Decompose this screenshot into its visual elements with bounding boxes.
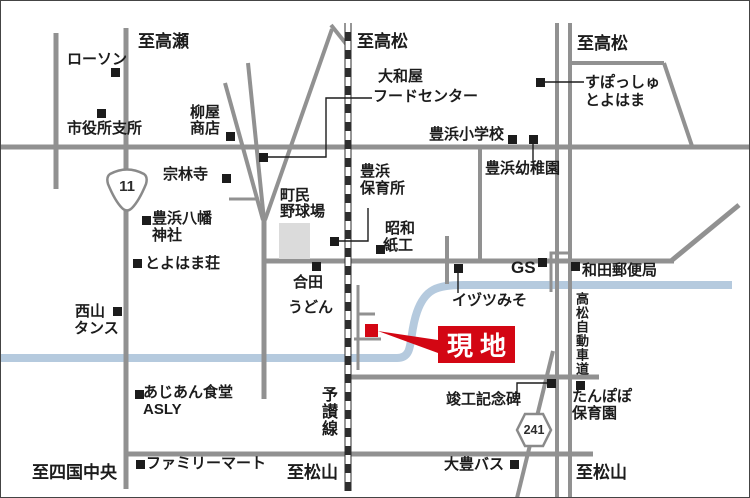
marker-toyohamaso [133, 259, 142, 268]
marker-gs [538, 258, 547, 267]
route-11-number: 11 [107, 178, 147, 195]
label-elementary: 豊浜小学校 [429, 127, 504, 143]
label-to-matsuyama-right: 至松山 [576, 465, 627, 481]
marker-yanagiya [226, 132, 235, 141]
label-yanagiya-1: 柳屋 [190, 105, 220, 121]
marker-kindergarten [529, 135, 538, 144]
label-sposh-2: とよはま [585, 93, 645, 109]
marker-city-branch [97, 109, 106, 118]
label-city-branch: 市役所支所 [67, 121, 142, 137]
label-asian-2: ASLY [143, 402, 182, 418]
label-toyohamaso: とよはま荘 [145, 256, 220, 272]
label-yanagiya-2: 商店 [190, 121, 220, 137]
marker-monument [547, 379, 556, 388]
label-to-takamatsu-right: 至高松 [577, 36, 628, 52]
road-trapezoid-diagonal [664, 63, 692, 146]
label-familymart: ファミリーマート [146, 456, 266, 472]
marker-lawson [111, 68, 120, 77]
label-kindergarten: 豊浜幼稚園 [485, 161, 560, 177]
label-yamatoya-1: 大和屋 [378, 69, 423, 85]
marker-daitoyo-bus [510, 460, 519, 469]
label-monument: 竣工記念碑 [446, 392, 521, 408]
toyohama-area-map: 至高瀬 至高松 至高松 至四国中央 至松山 至松山 ローソン 市役所支所 柳屋 … [0, 0, 750, 498]
marker-elementary [508, 135, 517, 144]
label-sorinji: 宗林寺 [163, 167, 208, 183]
ballpark-field [279, 223, 310, 259]
label-yamatoya-2: フードセンター [373, 89, 478, 105]
label-to-matsuyama-center: 至松山 [287, 465, 338, 481]
site-marker [365, 324, 378, 337]
label-ballpark-1: 町民 [280, 188, 310, 204]
marker-hachiman [142, 216, 151, 225]
label-gs: GS [511, 260, 536, 276]
marker-izutsu [454, 264, 463, 273]
label-goda-2: うどん [288, 300, 333, 316]
road-northeast-diagonal [671, 205, 739, 261]
label-nishiyama-2: タンス [74, 321, 119, 337]
route-241-number: 241 [514, 423, 554, 437]
label-tanpopo-1: たんぽぽ [572, 389, 632, 405]
marker-familymart [136, 460, 145, 469]
label-asian-1: あじあん食堂 [143, 385, 233, 401]
leader-nursery [338, 208, 368, 241]
label-showa-2: 紙工 [383, 238, 413, 254]
label-expressway: 高松自動車道 [573, 292, 589, 376]
label-tanpopo-2: 保育園 [572, 406, 617, 422]
label-hachiman-2: 神社 [152, 228, 182, 244]
label-lawson: ローソン [67, 52, 127, 68]
site-callout: 現地 [438, 326, 515, 363]
label-nishiyama-1: 西山 [75, 304, 105, 320]
label-nursery-2: 保育所 [360, 181, 405, 197]
label-goda-1: 合田 [293, 275, 323, 291]
label-to-takase: 至高瀬 [138, 34, 189, 50]
label-ballpark-2: 野球場 [280, 204, 325, 220]
marker-wada-post-office [571, 262, 580, 271]
marker-yamatoya [259, 153, 268, 162]
label-to-takamatsu-center: 至高松 [357, 34, 408, 50]
label-yosan-line: 予讃線 [319, 386, 335, 437]
marker-nursery [330, 237, 339, 246]
label-nursery-1: 豊浜 [360, 164, 390, 180]
label-daitoyo-bus: 大豊バス [444, 457, 504, 473]
label-izutsu: イヅツみそ [452, 293, 527, 309]
marker-sorinji [222, 174, 231, 183]
marker-goda [312, 262, 321, 271]
label-sposh-1: すぽっしゅ [585, 75, 660, 91]
label-wada-post-office: 和田郵便局 [582, 263, 657, 279]
label-to-shikokuchuo: 至四国中央 [32, 465, 117, 481]
marker-sposh [536, 78, 545, 87]
label-showa-1: 昭和 [385, 221, 415, 237]
marker-nishiyama [113, 307, 122, 316]
label-hachiman-1: 豊浜八幡 [152, 211, 212, 227]
